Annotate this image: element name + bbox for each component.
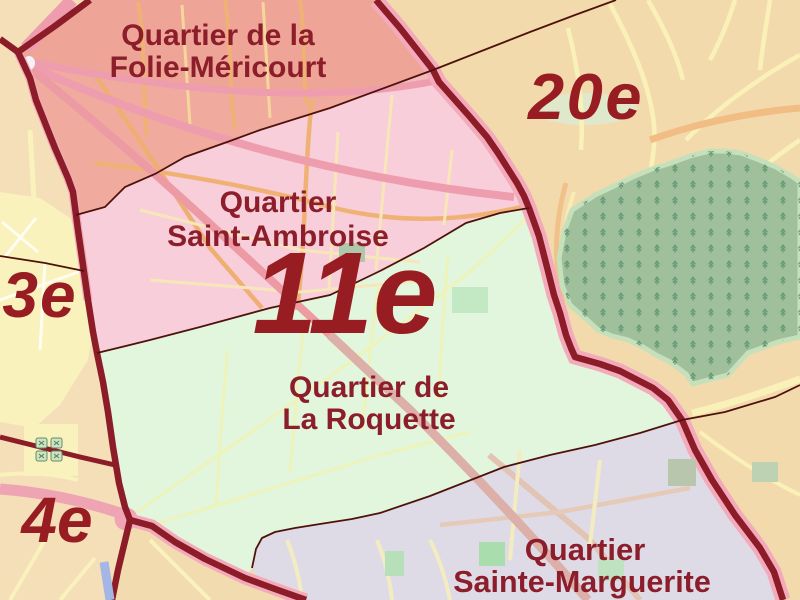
svg-text:Folie-Méricourt: Folie-Méricourt [110,51,327,84]
svg-text:Quartier: Quartier [525,532,646,567]
svg-text:3e: 3e [2,259,77,331]
svg-text:20e: 20e [526,60,644,133]
svg-text:Quartier de: Quartier de [289,371,449,404]
svg-text:Quartier de la: Quartier de la [121,19,315,52]
svg-text:11e: 11e [253,228,438,358]
svg-text:4e: 4e [19,484,92,556]
svg-text:Sainte-Marguerite: Sainte-Marguerite [453,565,711,599]
svg-text:Quartier: Quartier [220,186,337,219]
svg-text:La Roquette: La Roquette [282,403,455,436]
